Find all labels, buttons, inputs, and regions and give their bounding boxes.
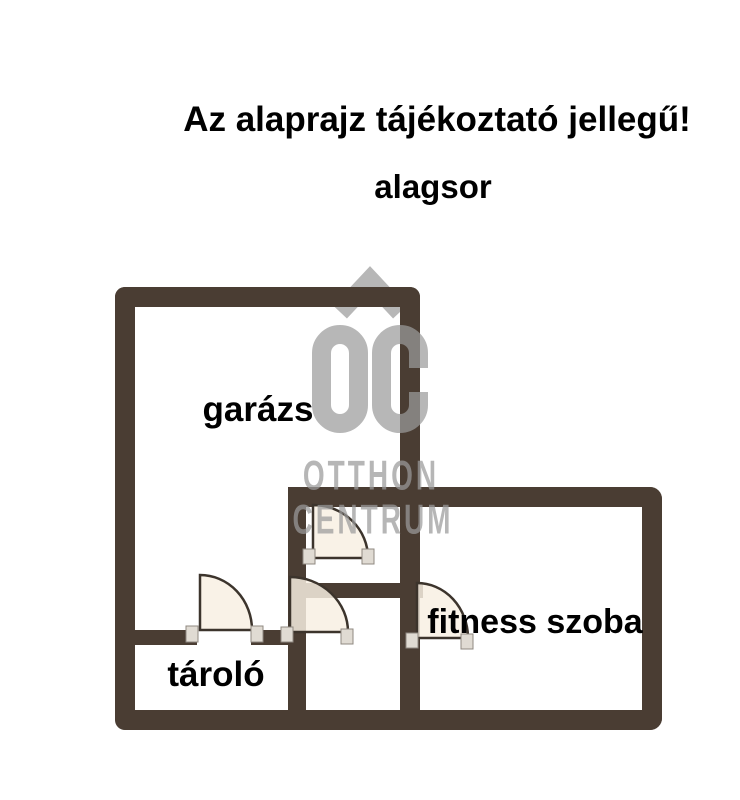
door-jamb — [406, 633, 418, 648]
door-jamb — [341, 629, 353, 644]
room-label-storage: tároló — [167, 655, 264, 695]
oc-logo-letter-o — [322, 335, 359, 424]
oc-logo-letter-c — [382, 335, 419, 424]
disclaimer-text: Az alaprajz tájékoztató jellegű! — [183, 100, 691, 140]
floor-level-label: alagsor — [374, 168, 491, 206]
floor-plan-canvas: Az alaprajz tájékoztató jellegű! alagsor — [0, 0, 740, 800]
door-lower-room-arc — [290, 577, 348, 632]
room-label-garage: garázs — [203, 390, 314, 430]
door-jamb — [186, 626, 198, 642]
door-storage-arc — [200, 575, 252, 630]
door-jamb — [362, 549, 374, 564]
room-label-fitness: fitness szoba — [427, 603, 642, 642]
watermark-brand-line2: CENTRUM — [293, 496, 454, 544]
door-jamb — [303, 549, 315, 564]
door-jamb — [251, 626, 263, 642]
watermark-brand-line1: OTTHON — [303, 452, 439, 500]
oc-logo-monogram — [322, 335, 419, 424]
door-jamb — [281, 627, 293, 642]
